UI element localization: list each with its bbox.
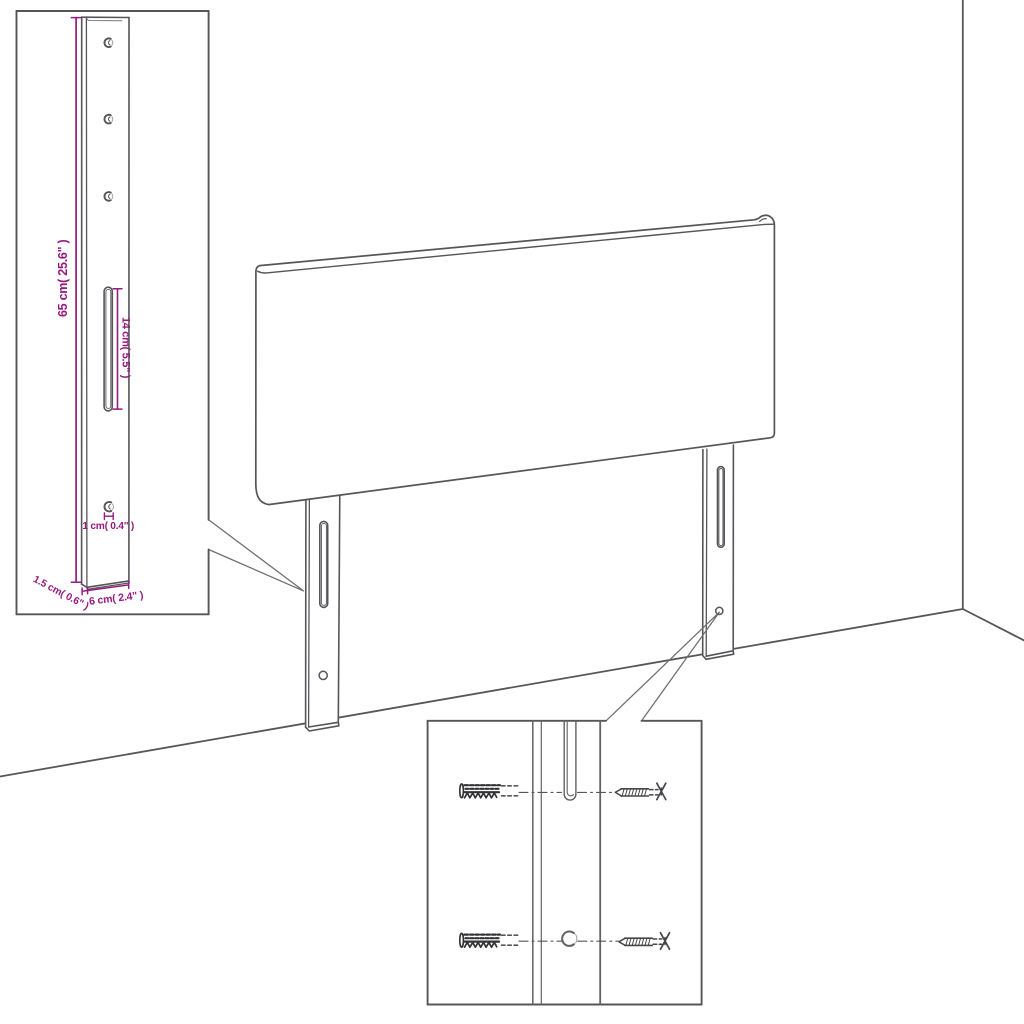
- svg-text:14 cm( 5.5" ): 14 cm( 5.5" ): [120, 317, 132, 379]
- svg-text:65 cm( 25.6" ): 65 cm( 25.6" ): [56, 239, 70, 317]
- svg-text:6 cm( 2.4" ): 6 cm( 2.4" ): [88, 589, 144, 608]
- svg-text:1 cm( 0.4" ): 1 cm( 0.4" ): [82, 521, 134, 532]
